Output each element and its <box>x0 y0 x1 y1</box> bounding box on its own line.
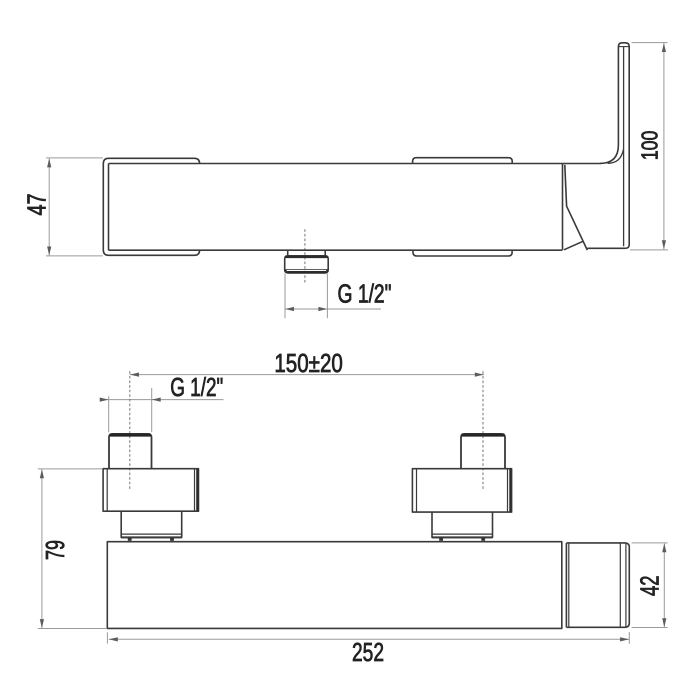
svg-text:42: 42 <box>635 576 665 597</box>
svg-text:79: 79 <box>40 540 70 560</box>
svg-text:47: 47 <box>22 194 52 216</box>
svg-text:G 1/2": G 1/2" <box>170 372 223 402</box>
svg-text:100: 100 <box>637 131 663 161</box>
svg-text:G 1/2": G 1/2" <box>338 278 392 308</box>
svg-text:252: 252 <box>352 637 384 667</box>
svg-text:150±20: 150±20 <box>274 348 343 378</box>
